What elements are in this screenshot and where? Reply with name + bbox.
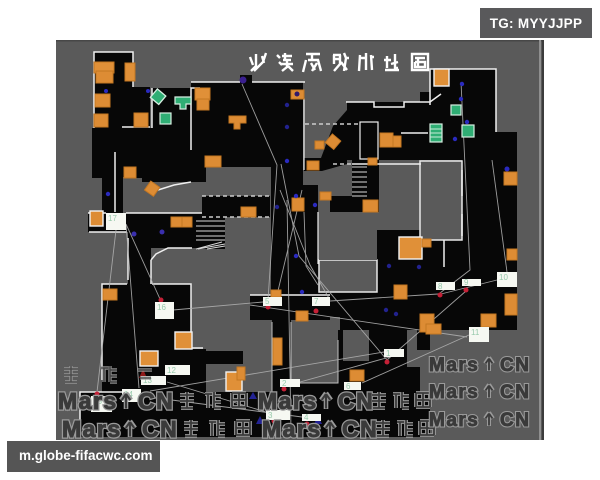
svg-text:TG: MYYJJPP: TG: MYYJJPP xyxy=(490,16,583,31)
svg-text:17: 17 xyxy=(108,214,117,223)
svg-text:m.globe-fifacwc.com: m.globe-fifacwc.com xyxy=(19,448,153,463)
svg-text:11: 11 xyxy=(471,328,480,337)
svg-text:12: 12 xyxy=(167,366,176,375)
svg-text:16: 16 xyxy=(157,303,166,312)
svg-text:1: 1 xyxy=(386,349,391,358)
svg-text:8: 8 xyxy=(438,282,443,291)
svg-text:5: 5 xyxy=(265,297,270,306)
svg-text:9: 9 xyxy=(464,278,469,287)
svg-text:10: 10 xyxy=(499,273,508,282)
svg-text:2: 2 xyxy=(282,379,287,388)
svg-text:7: 7 xyxy=(314,297,319,306)
